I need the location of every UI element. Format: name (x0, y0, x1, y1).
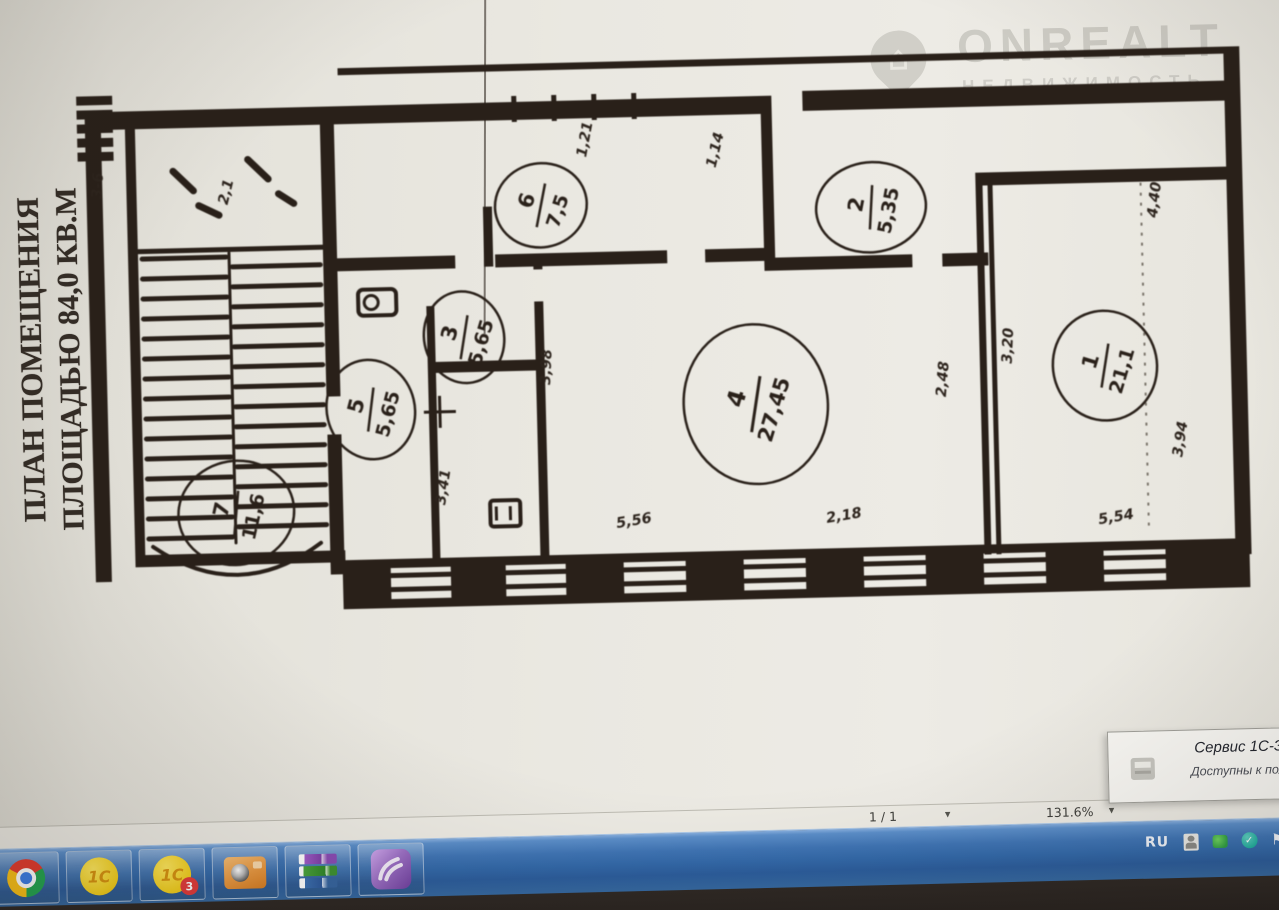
floor-plan-drawing: 711,6 55,65 35,65 67,5 427,45 25,35 121,… (75, 40, 1258, 628)
room-area: 5,65 (372, 389, 405, 440)
svg-text:2,1: 2,1 (216, 178, 238, 207)
svg-text:2,48: 2,48 (934, 361, 953, 398)
taskbar-apps: 1С 1С 3 (0, 842, 425, 905)
svg-text:3,94: 3,94 (1170, 420, 1191, 458)
chrome-button[interactable] (0, 851, 60, 905)
camera-viewer-icon (224, 856, 267, 889)
svg-text:3-6: 3-6 (89, 172, 107, 199)
room-number: 5 (343, 396, 370, 416)
winrar-icon (299, 854, 338, 889)
page-indicator: 1 / 1 (869, 809, 897, 825)
room-number: 6 (513, 190, 540, 212)
image-viewer-button[interactable] (211, 846, 278, 900)
room-area: 21,1 (1105, 345, 1139, 396)
check-circle-icon[interactable]: ✓ (1241, 832, 1257, 848)
room-area: 5,35 (874, 186, 904, 236)
1c-messages-button[interactable]: 1С 3 (138, 848, 205, 902)
svg-text:4,40: 4,40 (1145, 181, 1165, 219)
notification-popup[interactable]: Сервис 1С-ЭД Доступны к пол (1107, 726, 1279, 804)
notification-title: Сервис 1С-ЭД (1194, 737, 1279, 756)
staircase (140, 158, 328, 577)
room-labels: 711,6 55,65 35,65 67,5 427,45 25,35 121,… (163, 142, 1170, 574)
chrome-icon (7, 859, 46, 898)
purple-app-icon (371, 849, 412, 890)
svg-text:1,21: 1,21 (574, 120, 596, 158)
room-number: 4 (721, 386, 753, 410)
photo-rotation-wrapper: ⌂ ONREALT НЕДВИЖИМОСТЬ ПЛАН ПОМЕЩЕНИЯ ПЛ… (0, 0, 1279, 910)
svg-text:1,14: 1,14 (704, 131, 728, 170)
graphics-app-button[interactable] (357, 842, 424, 896)
green-status-icon[interactable] (1212, 834, 1227, 847)
room-area: 7,5 (542, 192, 574, 231)
room-area: 11,6 (238, 492, 270, 543)
room-number: 2 (843, 195, 869, 214)
room-area: 5,65 (464, 317, 498, 368)
zoom-level: 131.6% (1046, 804, 1094, 820)
1c-icon: 1С (80, 857, 119, 896)
svg-text:3,20: 3,20 (1000, 327, 1018, 363)
room-number: 3 (436, 323, 463, 344)
svg-text:3,98: 3,98 (538, 349, 556, 385)
room-number: 1 (1077, 351, 1104, 372)
svg-text:2,18: 2,18 (825, 505, 863, 527)
language-indicator[interactable]: RU (1145, 834, 1170, 851)
1c-button[interactable]: 1С (66, 850, 133, 904)
notification-body: Доступны к пол (1191, 762, 1279, 778)
page-dropdown-caret[interactable]: ▾ (945, 808, 951, 821)
monitor-screen: ⌂ ONREALT НЕДВИЖИМОСТЬ ПЛАН ПОМЕЩЕНИЯ ПЛ… (0, 0, 1279, 910)
notification-badge: 3 (180, 877, 198, 895)
action-center-flag-icon[interactable]: ⚑ (1271, 830, 1279, 848)
system-tray: RU ✓ ⚑ (1145, 830, 1279, 851)
winrar-button[interactable] (284, 844, 351, 898)
svg-text:5,54: 5,54 (1097, 507, 1135, 529)
zoom-dropdown-caret[interactable]: ▾ (1109, 804, 1115, 817)
document-viewer: ⌂ ONREALT НЕДВИЖИМОСТЬ ПЛАН ПОМЕЩЕНИЯ ПЛ… (0, 0, 1279, 850)
printer-icon (1131, 758, 1156, 781)
user-tray-icon[interactable] (1183, 833, 1198, 850)
svg-text:5,56: 5,56 (615, 510, 653, 532)
